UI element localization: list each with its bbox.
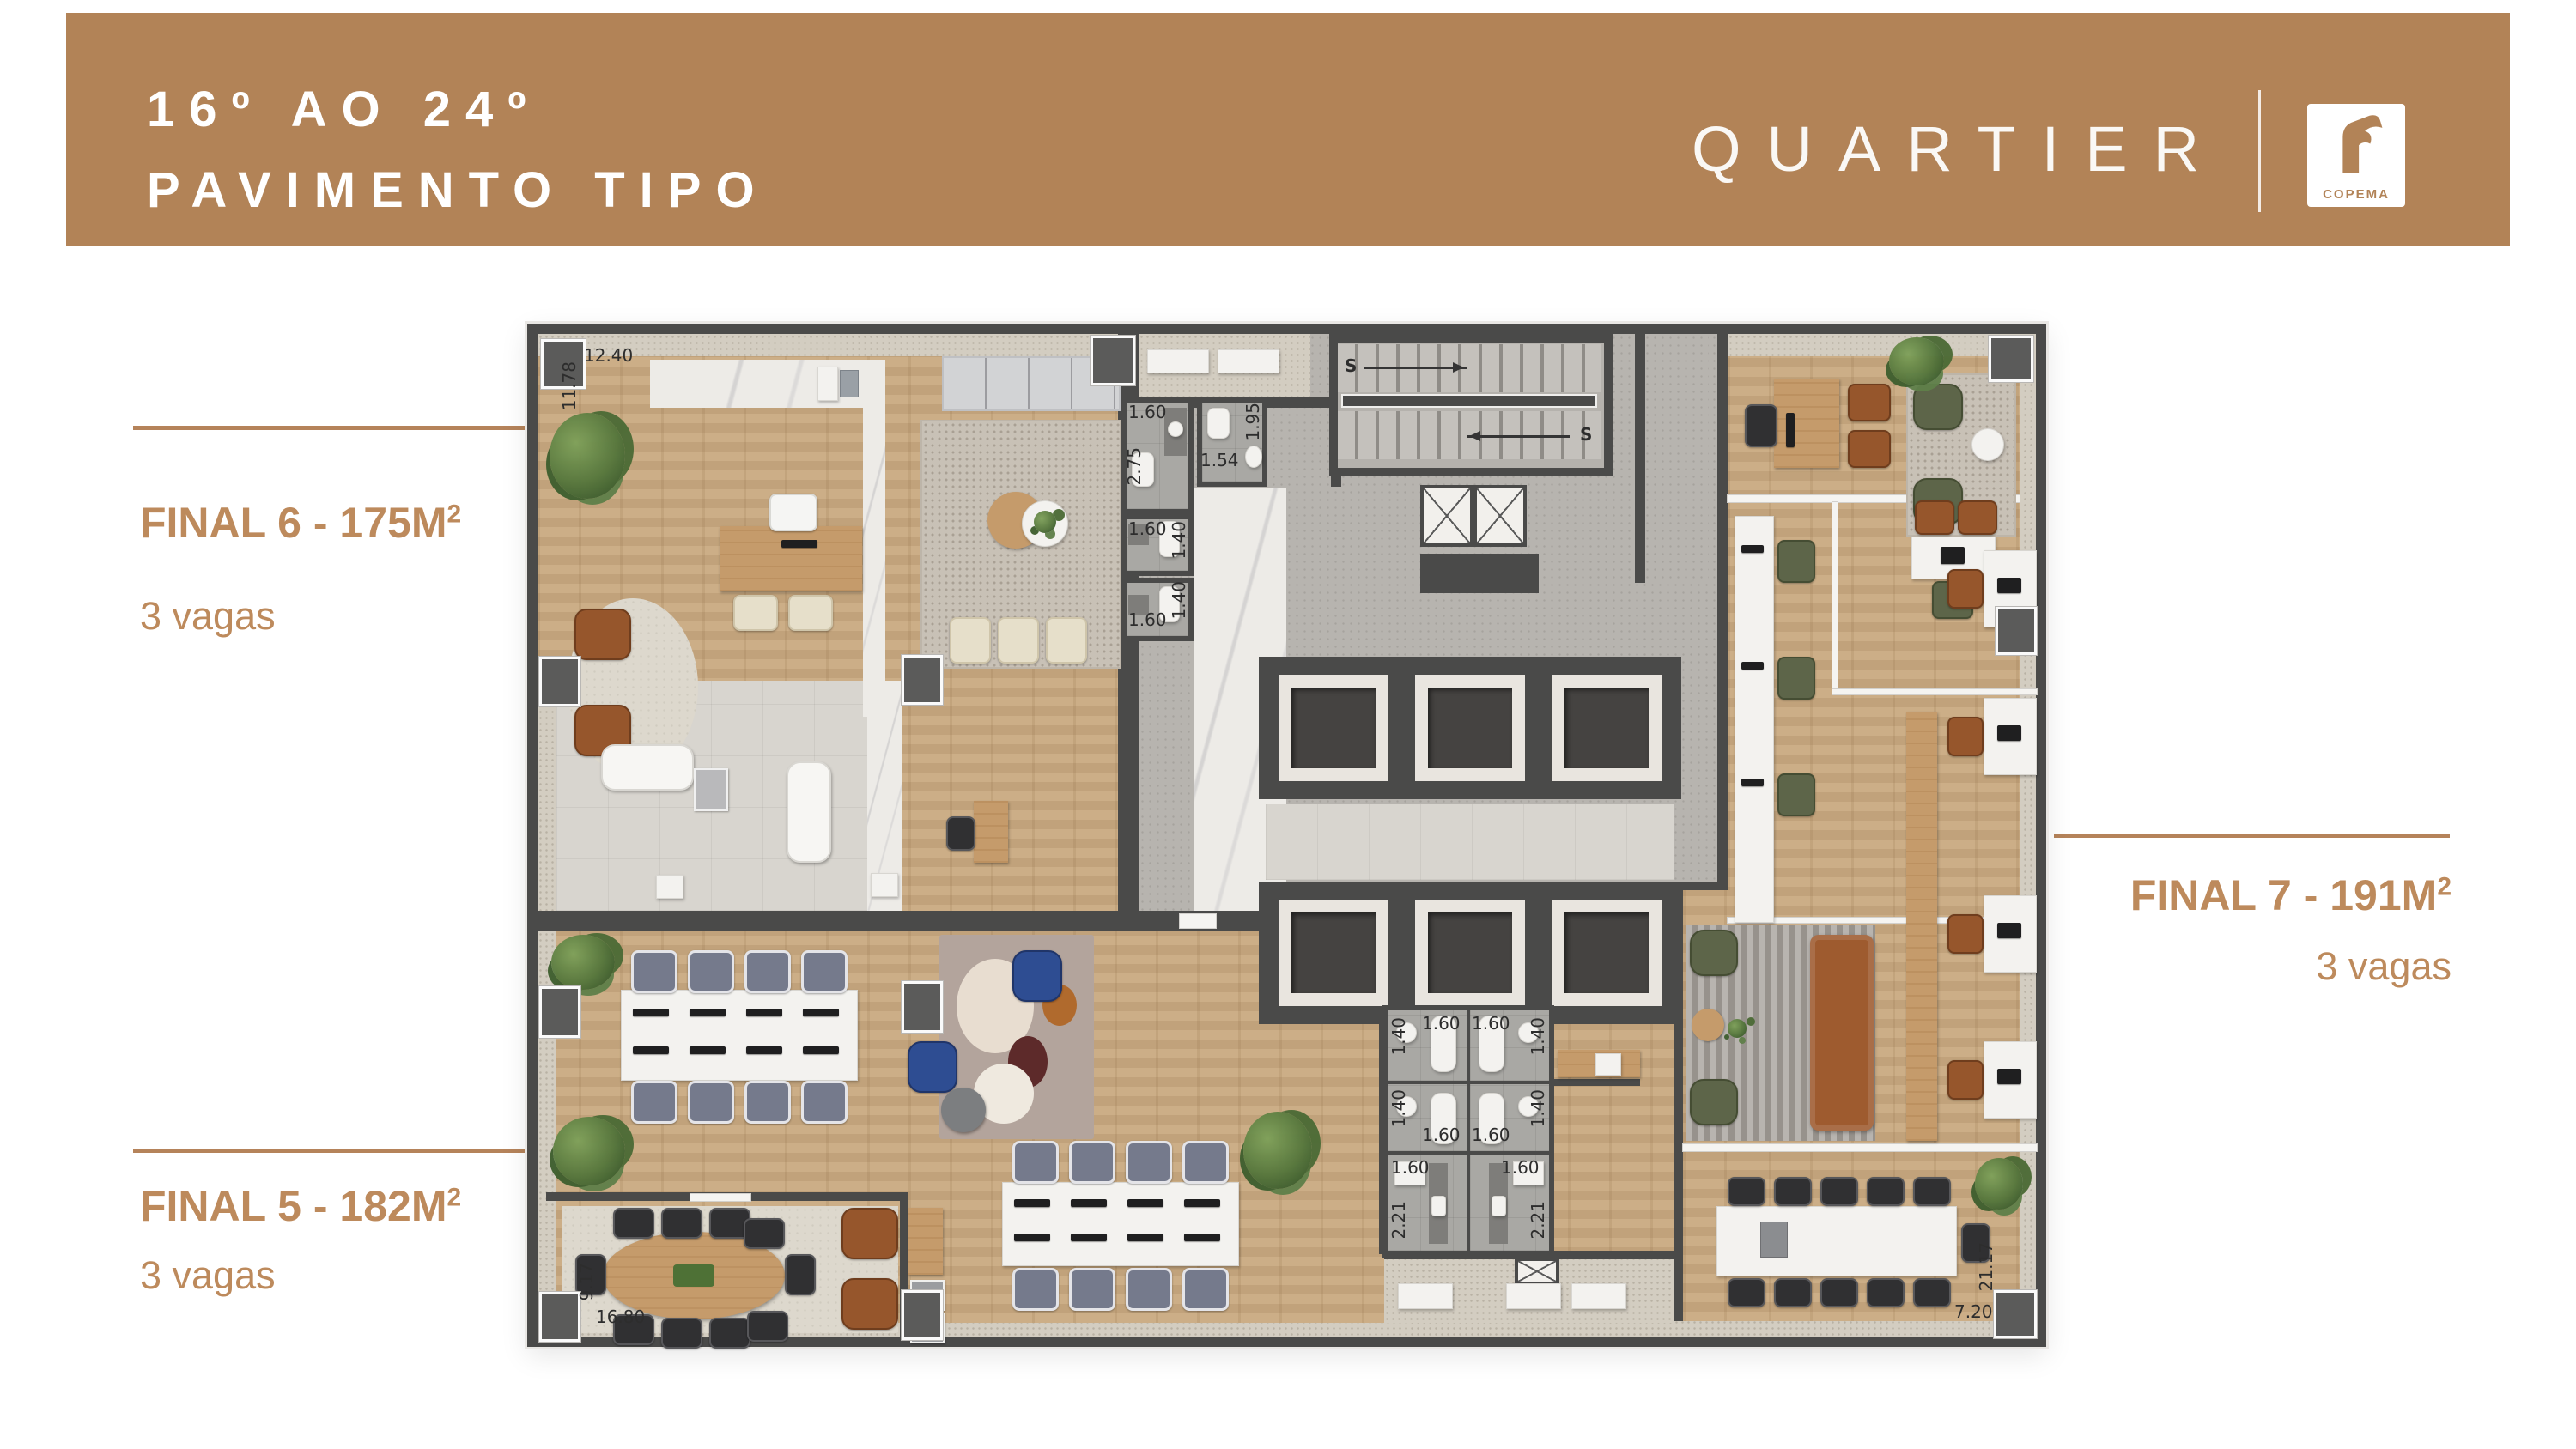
office-chair <box>1069 1268 1115 1311</box>
stair-lobby <box>1643 334 1709 583</box>
guest-chair <box>788 595 833 631</box>
chair <box>950 617 991 664</box>
leader-line-final7 <box>2054 834 2450 838</box>
office-chair <box>1182 1141 1229 1184</box>
dimension-label: 1.60 <box>1501 1158 1540 1177</box>
office-chair <box>688 950 734 993</box>
glass-wall-final7 <box>1832 689 2037 694</box>
chair <box>1046 617 1087 664</box>
label-final6: FINAL 6 - 175M2 <box>140 498 461 548</box>
header-banner: 16º AO 24º PAVIMENTO TIPO QUARTIER COPEM… <box>66 13 2510 246</box>
chair <box>1820 1177 1858 1206</box>
wall-core-east <box>1717 334 1728 883</box>
office-chair <box>1947 569 1984 609</box>
chair <box>998 617 1039 664</box>
laptop-icon <box>1941 547 1965 564</box>
office-chair <box>1126 1141 1172 1184</box>
terrace-bench <box>1398 1283 1453 1309</box>
office-chair <box>1745 404 1777 447</box>
office-chair <box>1182 1268 1229 1311</box>
dimension-label: 1.60 <box>1128 610 1167 629</box>
office-chair <box>1947 1060 1984 1100</box>
column <box>1989 336 2033 382</box>
armchair-blue <box>908 1041 957 1093</box>
service-shaft <box>1420 485 1473 547</box>
office-chair <box>744 1081 791 1124</box>
page-title: 16º AO 24º PAVIMENTO TIPO <box>147 70 769 231</box>
wall-kitchen <box>1554 1079 1640 1086</box>
dimension-label: 21.17 <box>1977 1242 1996 1291</box>
dimension-label: 1.60 <box>1128 403 1167 421</box>
workstation-bench <box>1002 1182 1239 1266</box>
side-table-round <box>1971 428 2004 461</box>
sofa-leather <box>1810 935 1874 1131</box>
column <box>539 986 580 1038</box>
title-line1: 16º AO 24º <box>147 70 769 150</box>
chair <box>747 1311 788 1342</box>
small-desk <box>974 801 1008 863</box>
glass-wall-final7 <box>1683 1144 2037 1151</box>
wall-final6-south <box>538 911 1139 931</box>
conference-table <box>1716 1206 1957 1276</box>
duct-room <box>1420 554 1539 593</box>
sink <box>871 873 898 897</box>
dimension-label: 2.21 <box>1389 1201 1408 1240</box>
monitor-icon <box>1184 1234 1220 1241</box>
chair <box>661 1318 702 1349</box>
leader-line-final5 <box>133 1149 580 1153</box>
treatment-bed <box>601 744 694 791</box>
dimension-label: 1.40 <box>1170 581 1188 620</box>
page: 16º AO 24º PAVIMENTO TIPO QUARTIER COPEM… <box>0 0 2576 1449</box>
table-console <box>1760 1222 1788 1258</box>
monitor-icon <box>1127 1234 1163 1241</box>
monitor-icon <box>746 1046 782 1054</box>
dimension-label: 1.95 <box>1243 403 1262 441</box>
office-chair <box>1126 1268 1172 1311</box>
column <box>1994 1290 2037 1338</box>
chair <box>785 1254 816 1295</box>
terrace-bench <box>1218 349 1279 373</box>
plant <box>1975 1158 2023 1210</box>
chair <box>709 1318 750 1349</box>
column <box>902 1290 943 1340</box>
monitor-icon <box>1127 1199 1163 1207</box>
plant <box>1889 337 1944 385</box>
dimension-label: 12.40 <box>584 346 633 365</box>
label-final5-vagas: 3 vagas <box>140 1253 276 1298</box>
stair-direction-arrow <box>1467 435 1570 438</box>
chair <box>1728 1278 1765 1307</box>
stair-direction-arrow <box>1364 367 1467 369</box>
armchair-blue <box>1012 950 1062 1002</box>
chair <box>1774 1177 1812 1206</box>
guest-chair <box>1848 430 1891 468</box>
chair <box>1913 1177 1951 1206</box>
sink <box>1492 1196 1506 1216</box>
office-chair <box>801 1081 848 1124</box>
leader-line-final6 <box>133 426 580 430</box>
dimension-label: 11.78 <box>560 361 579 410</box>
monitor-icon <box>1741 779 1764 786</box>
elevator-shaft <box>1271 892 1396 1014</box>
title-line2: PAVIMENTO TIPO <box>147 150 769 231</box>
executive-desk <box>720 526 862 591</box>
office-chair <box>1012 1268 1059 1311</box>
floor-plan: S S <box>527 324 2046 1347</box>
dimension-label: 1.60 <box>1128 519 1167 538</box>
treatment-bed <box>787 761 831 863</box>
armchair-leather <box>841 1278 898 1330</box>
workstation-bench <box>1735 516 1774 923</box>
monitor-icon <box>1014 1234 1050 1241</box>
sink <box>1431 1196 1446 1216</box>
guest-chair <box>733 595 778 631</box>
monitor-icon <box>1071 1199 1107 1207</box>
elevator-shaft <box>1407 892 1533 1014</box>
dimension-label: 7.20 <box>1954 1302 1993 1321</box>
dimension-label: 1.40 <box>1170 521 1188 560</box>
appliance <box>840 370 859 397</box>
armchair-leather <box>841 1208 898 1259</box>
office-chair <box>1777 773 1815 816</box>
armchair-leather <box>574 609 631 660</box>
office-chair <box>769 494 817 531</box>
office-chair <box>1012 1141 1059 1184</box>
chair <box>613 1208 654 1239</box>
office-chair <box>946 816 975 851</box>
column <box>539 657 580 706</box>
cooktop <box>1595 1053 1621 1076</box>
dimension-label: 1.60 <box>1422 1014 1461 1033</box>
sink <box>1245 446 1262 468</box>
glass-wall-final7 <box>1832 502 1838 694</box>
office-chair <box>631 950 677 993</box>
dimension-label: 1.54 <box>1200 451 1239 470</box>
laptop-icon <box>1997 1069 2021 1084</box>
dimension-label: 1.40 <box>1528 1089 1547 1128</box>
toilet <box>1207 408 1230 439</box>
brand-wordmark: QUARTIER <box>1692 112 2225 185</box>
service-shaft <box>1515 1258 1559 1285</box>
column <box>902 981 943 1033</box>
stairs-up-label: S <box>1345 356 1357 375</box>
sink <box>1168 421 1183 437</box>
monitor-icon <box>1014 1199 1050 1207</box>
door-gap <box>690 1194 750 1201</box>
copema-logo-glyph <box>2322 109 2391 176</box>
column <box>539 1292 580 1342</box>
dimension-label: 16.80 <box>596 1307 645 1326</box>
dimension-label: 1.60 <box>1422 1125 1461 1144</box>
column <box>902 655 943 705</box>
elevator-shaft <box>1407 667 1533 789</box>
laptop-icon <box>1997 578 2021 593</box>
monitor-icon <box>1786 413 1795 447</box>
dimension-label: 1.40 <box>1389 1089 1408 1128</box>
chair <box>1867 1177 1905 1206</box>
chair <box>1867 1278 1905 1307</box>
elevator-shaft <box>1271 667 1396 789</box>
laptop-icon <box>1997 725 2021 741</box>
monitor-icon <box>1741 662 1764 670</box>
stairs-up-label: S <box>1580 425 1592 444</box>
credenza-counter <box>908 1208 943 1275</box>
monitor-icon <box>1071 1234 1107 1241</box>
monitor-icon <box>803 1009 839 1016</box>
desk <box>1774 379 1839 468</box>
monitor-icon <box>690 1009 726 1016</box>
dimension-label: 1.60 <box>1472 1125 1510 1144</box>
monitor-icon <box>803 1046 839 1054</box>
office-chair <box>1777 657 1815 700</box>
terrace-bench <box>1571 1283 1626 1309</box>
plant <box>1034 511 1056 533</box>
stair-rail <box>1343 396 1595 406</box>
elevator-shaft <box>1544 667 1669 789</box>
monitor-icon <box>1184 1199 1220 1207</box>
armchair <box>1690 930 1738 976</box>
armchair <box>1913 384 1963 430</box>
wall <box>527 324 538 1347</box>
credenza-counter <box>1906 712 1937 1141</box>
office-chair <box>801 950 848 993</box>
office-chair <box>688 1081 734 1124</box>
wall <box>527 324 2046 334</box>
office-chair <box>1947 717 1984 756</box>
column <box>1091 336 1135 385</box>
office-chair <box>1069 1141 1115 1184</box>
guest-chair <box>1915 500 1954 535</box>
table-planter <box>673 1264 714 1287</box>
appliance <box>817 367 838 401</box>
monitor-icon <box>690 1046 726 1054</box>
ottoman <box>941 1088 986 1132</box>
terrace-bench <box>1506 1283 1561 1309</box>
equipment-trolley <box>694 768 728 811</box>
monitor-icon <box>1741 545 1764 553</box>
label-final5: FINAL 5 - 182M2 <box>140 1181 461 1231</box>
chair <box>661 1208 702 1239</box>
label-final6-vagas: 3 vagas <box>140 594 276 639</box>
dimension-label: 1.60 <box>1472 1014 1510 1033</box>
monitor-icon <box>781 540 817 548</box>
door-gap <box>1180 914 1216 928</box>
dimension-label: 1.40 <box>1528 1017 1547 1056</box>
office-chair <box>1777 540 1815 583</box>
copema-logo: COPEMA <box>2307 104 2405 207</box>
office-chair <box>744 950 791 993</box>
chair <box>1774 1278 1812 1307</box>
plant <box>550 413 625 499</box>
office-chair <box>631 1081 677 1124</box>
dimension-label: 9.17 <box>577 1263 596 1301</box>
chair <box>744 1218 785 1249</box>
workstation-bench <box>621 990 858 1081</box>
monitor-icon <box>633 1046 669 1054</box>
chair <box>1728 1177 1765 1206</box>
elevator-shaft <box>1544 892 1669 1014</box>
monitor-icon <box>633 1009 669 1016</box>
side-table-round <box>1692 1009 1724 1041</box>
monitor-icon <box>746 1009 782 1016</box>
dimension-label: 2.75 <box>1125 447 1144 486</box>
dimension-label: 1.60 <box>1391 1158 1430 1177</box>
plant <box>551 935 615 990</box>
guest-chair <box>1958 500 1997 535</box>
banner-divider <box>2258 90 2261 212</box>
wall <box>2036 324 2046 1347</box>
wall-stairlobby-west <box>1635 334 1645 583</box>
partition-marble <box>863 360 885 717</box>
plant <box>1728 1019 1747 1038</box>
elevator-lobby <box>1266 804 1674 880</box>
plant <box>1243 1112 1312 1189</box>
guest-chair <box>1848 384 1891 421</box>
armchair <box>1690 1079 1738 1125</box>
copema-logo-text: COPEMA <box>2323 187 2390 202</box>
stairwell: S S <box>1329 334 1613 476</box>
chair <box>1913 1278 1951 1307</box>
sink <box>656 875 683 899</box>
dimension-label: 2.21 <box>1528 1201 1547 1240</box>
laptop-icon <box>1997 923 2021 938</box>
service-shaft <box>1473 485 1527 547</box>
office-chair <box>1947 914 1984 954</box>
dimension-label: 1.40 <box>1389 1017 1408 1056</box>
plant <box>553 1117 625 1185</box>
chair <box>1820 1278 1858 1307</box>
terrace-bench <box>1147 349 1209 373</box>
column <box>1996 607 2037 655</box>
